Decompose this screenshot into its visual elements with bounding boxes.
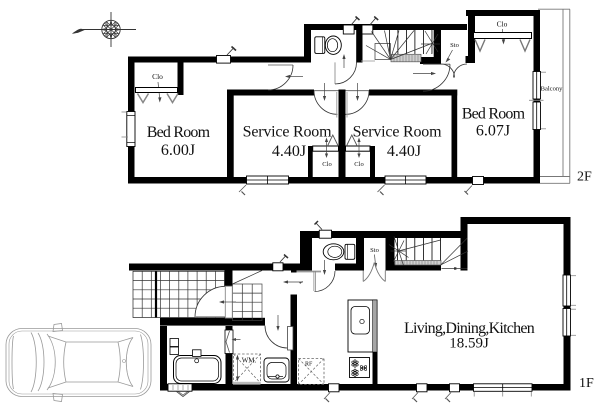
svg-text:2F: 2F bbox=[577, 170, 592, 185]
svg-text:Bed Room: Bed Room bbox=[462, 106, 526, 123]
svg-text:18.59J: 18.59J bbox=[449, 336, 489, 352]
svg-text:WM.: WM. bbox=[242, 357, 257, 365]
svg-text:Balcony: Balcony bbox=[541, 86, 563, 93]
svg-text:4.40J: 4.40J bbox=[387, 143, 421, 160]
svg-text:6.00J: 6.00J bbox=[161, 142, 195, 159]
svg-text:Clo: Clo bbox=[354, 161, 363, 168]
svg-text:Sto: Sto bbox=[450, 42, 459, 49]
svg-text:RF: RF bbox=[305, 362, 313, 368]
svg-text:Bed Room: Bed Room bbox=[147, 124, 211, 141]
svg-text:Service Room: Service Room bbox=[353, 124, 442, 141]
svg-text:Clo: Clo bbox=[152, 72, 163, 81]
svg-text:Living,Dining,Kitchen: Living,Dining,Kitchen bbox=[404, 320, 535, 337]
svg-text:Clo: Clo bbox=[497, 20, 508, 29]
svg-text:4.40J: 4.40J bbox=[272, 143, 306, 160]
svg-text:Clo: Clo bbox=[322, 161, 331, 168]
svg-text:Service Room: Service Room bbox=[243, 124, 332, 141]
svg-text:Sto: Sto bbox=[370, 247, 379, 254]
svg-text:6.07J: 6.07J bbox=[476, 123, 510, 140]
svg-text:1F: 1F bbox=[579, 376, 594, 391]
